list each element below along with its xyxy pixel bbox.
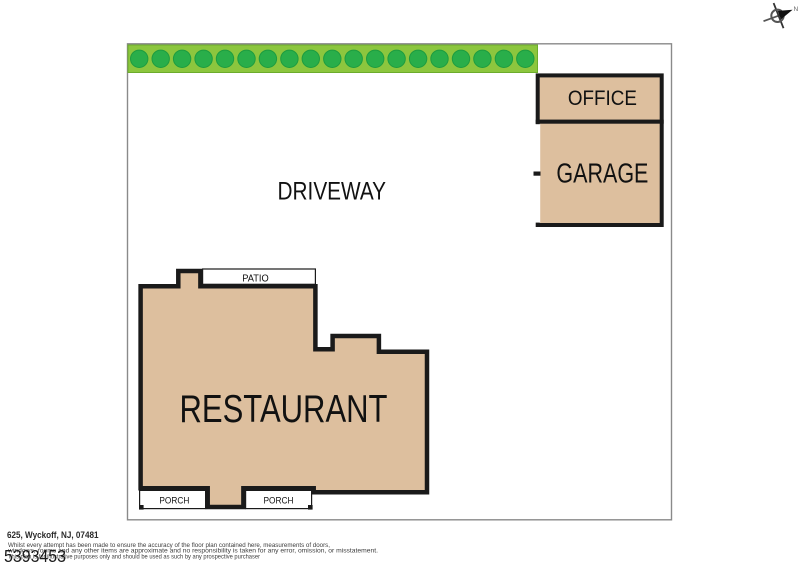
svg-text:PORCH: PORCH: [264, 495, 294, 505]
svg-text:N: N: [793, 6, 798, 13]
svg-text:OFFICE: OFFICE: [568, 86, 637, 110]
svg-text:PATIO: PATIO: [242, 274, 269, 285]
svg-text:GARAGE: GARAGE: [556, 158, 648, 189]
svg-text:RESTAURANT: RESTAURANT: [180, 388, 388, 431]
svg-text:DRIVEWAY: DRIVEWAY: [278, 177, 387, 205]
svg-text:5393453: 5393453: [4, 546, 66, 565]
svg-text:625, Wyckoff, NJ, 07481: 625, Wyckoff, NJ, 07481: [7, 530, 99, 540]
svg-text:PORCH: PORCH: [159, 495, 189, 505]
